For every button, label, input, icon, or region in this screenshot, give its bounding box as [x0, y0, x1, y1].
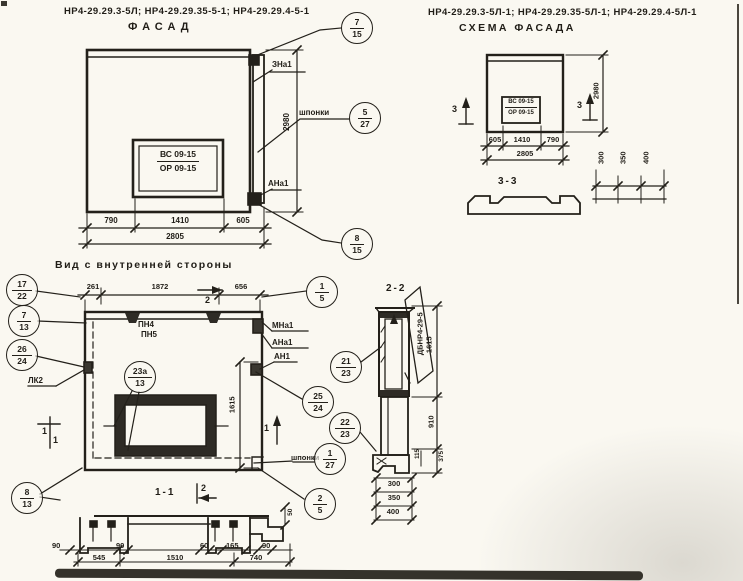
dim-50: 50: [288, 502, 295, 522]
dim-165: 165: [226, 542, 239, 550]
balloon-detail-number: 2: [313, 494, 328, 505]
dim-90-a: 90: [52, 542, 60, 550]
dim-910: 910: [427, 408, 435, 436]
scan-line-artifact: [737, 4, 739, 304]
balloon-sheet-number: 24: [313, 403, 322, 413]
balloon-sheet-number: 27: [360, 119, 369, 129]
dim-1510: 1510: [160, 554, 190, 562]
balloon-sheet-number: 5: [318, 505, 323, 515]
balloon-sheet-number: 13: [19, 322, 28, 332]
section-1-1-title: 1-1: [155, 488, 175, 498]
balloon-sheet-number: 27: [325, 460, 334, 470]
dim-350: 350: [381, 494, 407, 502]
level-dim-350: 350: [619, 144, 627, 172]
callout-balloon-2-5[interactable]: 2 5: [304, 488, 336, 520]
section-1-marker-right: 1: [264, 424, 269, 433]
drawing-linework: [0, 0, 743, 581]
dim-1872: 1872: [145, 283, 175, 291]
callout-balloon-21-23[interactable]: 21 23: [330, 351, 362, 383]
balloon-detail-number: 23а: [128, 367, 152, 378]
balloon-sheet-number: 23: [340, 429, 349, 439]
balloon-detail-number: 17: [12, 280, 31, 291]
inner-view-title: Вид с внутренней стороны: [55, 260, 233, 271]
section-2-marker-top: 2: [205, 296, 210, 305]
callout-balloon-23a-13[interactable]: 23а 13: [124, 361, 156, 393]
dim-1615-inner: 1615: [228, 389, 236, 421]
dim-605: 605: [230, 217, 256, 225]
balloon-detail-number: 1: [315, 282, 330, 293]
dim-656: 656: [229, 283, 253, 291]
window-block-label: ДБНР4-29-5: [416, 290, 424, 378]
balloon-sheet-number: 15: [352, 245, 361, 255]
dim-2805-total: 2805: [159, 233, 191, 241]
balloon-detail-number: 8: [350, 234, 365, 245]
window-mark-bottom: ОР 09-15: [160, 162, 196, 173]
dim-2805-total: 2805: [509, 150, 541, 158]
dim-2980-height: 2980: [592, 75, 600, 107]
dim-115: 115: [415, 443, 421, 465]
dim-261: 261: [83, 283, 103, 291]
balloon-detail-number: 7: [350, 18, 365, 29]
balloon-sheet-number: 24: [17, 356, 26, 366]
shponki-label-facade: шпонки: [299, 109, 329, 117]
balloon-detail-number: 25: [308, 392, 327, 403]
scheme-code-line: НР4-29.29.3-5Л-1; НР4-29.29.35-5Л-1; НР4…: [428, 8, 697, 18]
balloon-sheet-number: 15: [352, 29, 361, 39]
embed-label-mna1: МНа1: [272, 322, 293, 330]
facade-code-line: НР4-29.29.3-5Л; НР4-29.29.35-5-1; НР4-29…: [64, 7, 309, 17]
dim-790: 790: [99, 217, 123, 225]
section-3-marker-right: 3: [577, 101, 582, 110]
balloon-sheet-number: 5: [320, 293, 325, 303]
balloon-detail-number: 21: [336, 357, 355, 368]
balloon-sheet-number: 13: [135, 378, 144, 388]
balloon-sheet-number: 22: [17, 291, 26, 301]
callout-balloon-17-22[interactable]: 17 22: [6, 274, 38, 306]
facade-window-mark: ВС 09-15 ОР 09-15: [140, 150, 216, 172]
callout-balloon-25-24[interactable]: 25 24: [302, 386, 334, 418]
embed-label-ana1: АНа1: [272, 339, 292, 347]
callout-balloon-8-15[interactable]: 8 15: [341, 228, 373, 260]
embed-label-ana1-facade: АНа1: [268, 180, 288, 188]
section-2-marker-bottom: 2: [201, 484, 206, 493]
dim-60: 60: [200, 542, 208, 550]
balloon-detail-number: 8: [20, 488, 35, 499]
dim-375: 375: [439, 443, 446, 469]
dim-1410: 1410: [508, 136, 536, 144]
facade-scheme-linework: [459, 51, 668, 214]
section-2-2-title: 2-2: [386, 284, 406, 294]
embed-label-pn5: ПН5: [141, 331, 157, 339]
callout-balloon-7-15[interactable]: 7 15: [341, 12, 373, 44]
balloon-sheet-number: 23: [341, 368, 350, 378]
dim-790: 790: [542, 136, 564, 144]
level-dim-400: 400: [642, 144, 650, 172]
balloon-detail-number: 1: [323, 449, 338, 460]
section-3-marker-left: 3: [452, 105, 457, 114]
dim-545: 545: [86, 554, 112, 562]
dim-605: 605: [486, 136, 504, 144]
dim-2980-height: 2980: [283, 106, 291, 138]
callout-balloon-26-24[interactable]: 26 24: [6, 339, 38, 371]
section-1-marker-left-a: 1: [42, 427, 47, 436]
dim-300: 300: [381, 480, 407, 488]
window-mark-top: ВС 09-15: [505, 99, 536, 108]
callout-balloon-22-23[interactable]: 22 23: [329, 412, 361, 444]
scheme-title: СХЕМА ФАСАДА: [459, 23, 576, 34]
window-mark-top: ВС 09-15: [157, 150, 199, 162]
callout-balloon-shponki[interactable]: 5 27: [349, 102, 381, 134]
embed-label-pn4: ПН4: [138, 321, 154, 329]
dim-90-b: 90: [116, 542, 124, 550]
embed-label-zna1: ЗНа1: [272, 61, 292, 69]
embed-label-an1: АН1: [274, 353, 290, 361]
balloon-detail-number: 26: [12, 345, 31, 356]
dim-740: 740: [243, 554, 269, 562]
facade-linework: [79, 28, 349, 248]
level-dim-300: 300: [597, 144, 605, 172]
section-2-2-linework: [372, 287, 442, 524]
blueprint-page: НР4-29.29.3-5Л; НР4-29.29.35-5-1; НР4-29…: [0, 0, 743, 581]
callout-balloon-7-13[interactable]: 7 13: [8, 305, 40, 337]
window-mark-bottom: ОР 09-15: [508, 108, 534, 116]
embed-label-lk2: ЛК2: [28, 377, 43, 385]
dim-400: 400: [380, 508, 406, 516]
balloon-detail-number: 5: [358, 108, 373, 119]
balloon-detail-number: 7: [17, 311, 32, 322]
dim-1410: 1410: [164, 217, 196, 225]
balloon-detail-number: 22: [335, 418, 354, 429]
scan-speck-artifact: [1, 1, 7, 6]
section-1-marker-left-b: 1: [53, 436, 58, 445]
dim-90-c: 90: [262, 542, 270, 550]
callout-balloon-8-13[interactable]: 8 13: [11, 482, 43, 514]
scheme-window-mark: ВС 09-15 ОР 09-15: [503, 99, 539, 116]
callout-balloon-1-27[interactable]: 1 27: [314, 443, 346, 475]
section-3-3-title: 3-3: [498, 177, 518, 187]
facade-title: ФАСАД: [128, 22, 194, 33]
dim-1615-section: 1615: [425, 329, 433, 361]
callout-balloon-1-5[interactable]: 1 5: [306, 276, 338, 308]
balloon-sheet-number: 13: [22, 499, 31, 509]
